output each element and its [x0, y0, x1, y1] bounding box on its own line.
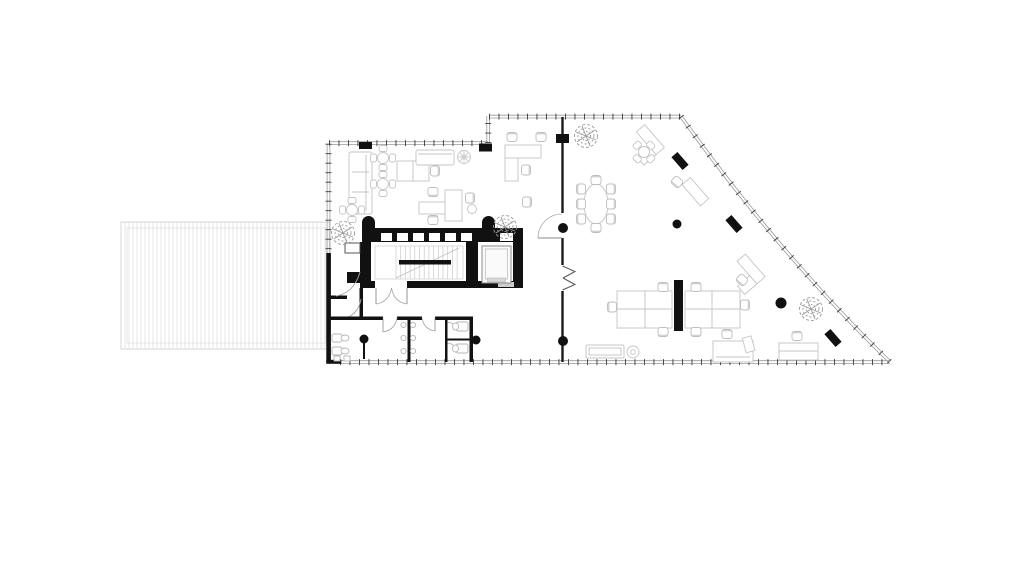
chair — [607, 184, 616, 194]
chair — [591, 176, 601, 185]
facade-column-angled — [725, 215, 742, 233]
chair — [608, 302, 617, 312]
chair — [507, 133, 517, 142]
angled-desk — [725, 254, 765, 294]
facade-column-angled — [671, 152, 688, 170]
chair — [522, 165, 531, 175]
curtain-wall-north — [489, 115, 681, 118]
round-side-table — [627, 346, 639, 358]
plant — [575, 125, 598, 148]
chair — [691, 283, 701, 292]
chair — [428, 216, 438, 225]
column — [360, 335, 369, 360]
pill-column-west — [362, 216, 375, 242]
floor-plan-page — [0, 0, 1024, 581]
round-side-table — [458, 151, 471, 164]
column — [558, 223, 568, 233]
l-desk-northeast — [505, 145, 541, 181]
round-table-4 — [371, 172, 396, 197]
chair — [577, 199, 586, 209]
chair — [577, 214, 586, 224]
sofa-north — [416, 150, 454, 165]
chair — [792, 332, 802, 341]
service-core — [345, 216, 523, 320]
chair — [670, 175, 683, 188]
reception-desk — [713, 336, 755, 362]
chair — [691, 328, 701, 337]
chair — [591, 224, 601, 233]
bench-sofa — [586, 345, 624, 358]
column — [673, 220, 682, 229]
interior-partition — [538, 117, 575, 362]
core-threshold — [345, 243, 360, 253]
angled-desk — [624, 125, 664, 165]
wall-column-box — [479, 144, 492, 152]
chair — [658, 328, 668, 337]
chair — [431, 166, 440, 176]
plant — [800, 298, 823, 321]
curtain-wall-northwest — [329, 142, 488, 145]
chair — [722, 330, 732, 339]
wall-column-box — [359, 142, 372, 149]
terrace-deck — [121, 222, 330, 349]
plant — [332, 222, 355, 245]
chair — [607, 199, 616, 209]
restroom-fixtures — [332, 322, 468, 361]
core-double-doors — [376, 288, 407, 304]
partition-door — [538, 214, 562, 238]
desk-southeast — [779, 343, 818, 360]
floor-plan-canvas — [0, 0, 1024, 581]
privacy-screen — [674, 280, 683, 331]
chair — [466, 193, 475, 203]
angled-desk — [682, 177, 709, 205]
stair-handrail — [399, 260, 451, 265]
chair — [428, 188, 438, 197]
vestibule-door-arc — [342, 299, 361, 319]
meeting-table-oval — [584, 184, 608, 224]
column — [776, 298, 787, 309]
elevator — [482, 246, 511, 283]
curtain-wall-south — [340, 361, 890, 364]
column — [558, 336, 568, 346]
restrooms — [328, 317, 473, 363]
column — [472, 336, 481, 345]
facade-column-angled — [824, 329, 841, 347]
round-table-4 — [371, 146, 396, 171]
chair — [577, 184, 586, 194]
chair — [536, 133, 546, 142]
chair — [607, 214, 616, 224]
partition-column-box — [556, 134, 569, 143]
chair — [523, 197, 532, 207]
chair — [741, 300, 750, 310]
chair — [658, 283, 668, 292]
pill-column-east — [482, 216, 495, 242]
curtain-wall-jog — [487, 116, 490, 143]
partition-double-door — [563, 266, 576, 290]
